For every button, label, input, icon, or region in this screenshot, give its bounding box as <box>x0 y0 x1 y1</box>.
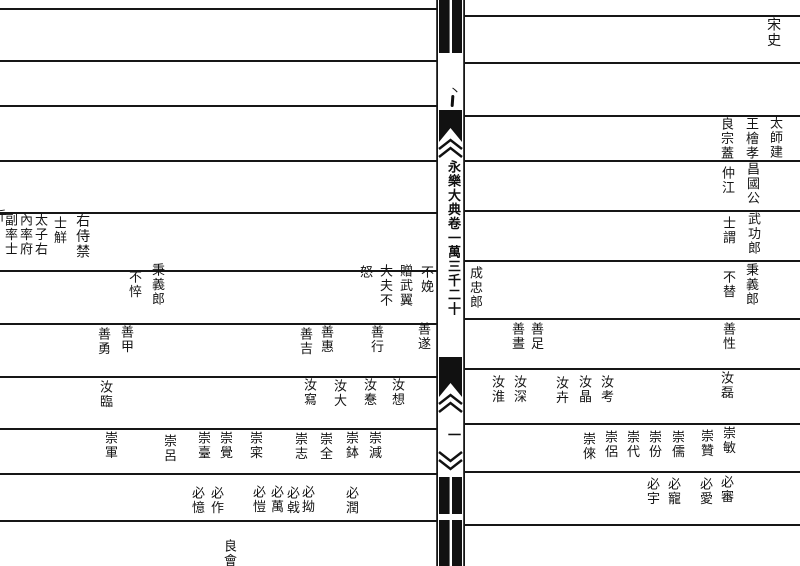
genealogy-entry: 贈武翼 <box>397 264 411 308</box>
spine-page-number: 一 <box>444 428 459 442</box>
genealogy-entry: 善晝 <box>509 322 523 351</box>
genealogy-entry: 善吉 <box>297 327 311 356</box>
rule-line <box>465 368 800 370</box>
genealogy-entry: 必萬 <box>268 485 282 514</box>
genealogy-entry: 斤 <box>0 209 5 224</box>
rule-line <box>465 471 800 473</box>
genealogy-entry: 善遂 <box>415 322 429 351</box>
genealogy-entry: 善性 <box>720 322 734 351</box>
fishtail-icon <box>439 110 462 157</box>
genealogy-entry: 王檜孝 <box>743 117 757 161</box>
genealogy-entry: 汝深 <box>511 375 525 404</box>
rule-line <box>0 428 437 430</box>
genealogy-entry: 崇敏 <box>720 426 734 455</box>
spine-top-bar <box>439 0 462 53</box>
genealogy-entry: 必憶 <box>189 486 203 515</box>
genealogy-entry: 汝晶 <box>576 375 590 404</box>
genealogy-entry: 汝磊 <box>718 371 732 400</box>
genealogy-entry: 大夫不 <box>377 264 391 308</box>
rule-line <box>0 212 437 214</box>
genealogy-entry: 崇減 <box>366 431 380 460</box>
genealogy-entry: 成忠郎 <box>467 266 481 310</box>
genealogy-entry: 怒 <box>357 265 371 280</box>
genealogy-entry: 不悴 <box>126 270 140 299</box>
fishtail-icon <box>439 357 462 412</box>
rule-line <box>0 520 437 522</box>
genealogy-entry: 善惠 <box>318 325 332 354</box>
genealogy-entry: 必㦸 <box>284 486 298 515</box>
genealogy-entry: 仲江 <box>719 166 733 195</box>
genealogy-entry: 必寵 <box>665 477 679 506</box>
genealogy-entry: 善甲 <box>118 325 132 354</box>
genealogy-entry: 崇志 <box>292 432 306 461</box>
genealogy-entry: 太師建 <box>767 116 781 160</box>
rule-line <box>465 524 800 526</box>
genealogy-entry: 汝臨 <box>97 380 111 409</box>
genealogy-entry: 必愷 <box>250 485 264 514</box>
spine-right-border <box>463 0 465 566</box>
genealogy-entry: 良宗蓋 <box>718 117 732 161</box>
rule-line <box>465 318 800 320</box>
rule-line <box>0 8 437 10</box>
rule-line <box>0 160 437 162</box>
genealogy-entry: 崇儒 <box>669 430 683 459</box>
spine-mark-stroke <box>451 95 454 107</box>
genealogy-entry: 善足 <box>528 322 542 351</box>
genealogy-entry: 善勇 <box>95 327 109 356</box>
genealogy-entry: 不娩 <box>418 265 432 294</box>
genealogy-entry: 汝惷 <box>361 378 375 407</box>
genealogy-entry: 崇臺 <box>195 431 209 460</box>
rule-line <box>465 15 800 17</box>
genealogy-entry: 必愛 <box>697 477 711 506</box>
genealogy-entry: 汝想 <box>389 378 403 407</box>
genealogy-entry: 秉義郎 <box>743 263 757 307</box>
rule-line <box>0 60 437 62</box>
genealogy-entry: 必宇 <box>644 477 658 506</box>
genealogy-entry: 善行 <box>368 325 382 354</box>
genealogy-entry: 崇贊 <box>698 429 712 458</box>
genealogy-entry: 崇倈 <box>580 432 594 461</box>
genealogy-entry: 必潤 <box>343 486 357 515</box>
genealogy-entry: 良會 <box>221 539 235 566</box>
genealogy-entry: 武功郎 <box>745 212 759 256</box>
genealogy-entry: 汝考 <box>598 375 612 404</box>
genealogy-entry: 必作 <box>208 486 222 515</box>
rule-line <box>0 473 437 475</box>
genealogy-entry: 崇侶 <box>602 430 616 459</box>
genealogy-entry: 汝寫 <box>301 378 315 407</box>
genealogy-entry: 汝淮 <box>489 375 503 404</box>
rule-line <box>465 62 800 64</box>
genealogy-entry: 士觧 <box>51 216 65 245</box>
genealogy-entry: 崇覺 <box>217 431 231 460</box>
genealogy-entry: 太子右 <box>32 213 46 257</box>
fishtail-inverted-icon <box>439 452 462 566</box>
genealogy-entry: 必拗 <box>299 485 313 514</box>
genealogy-entry: 汝卉 <box>553 376 567 405</box>
genealogy-entry: 崇份 <box>646 430 660 459</box>
genealogy-entry: 秉義郎 <box>149 263 163 307</box>
genealogy-entry: 崇代 <box>624 430 638 459</box>
rule-line <box>465 423 800 425</box>
rule-line <box>465 260 800 262</box>
genealogy-entry: 崇寀 <box>247 431 261 460</box>
genealogy-entry: 汝大 <box>331 379 345 408</box>
genealogy-entry: 宋史 <box>765 17 780 48</box>
genealogy-entry: 崇呂 <box>161 434 175 463</box>
genealogy-entry: 崇軍 <box>102 431 116 460</box>
spine-left-border <box>436 0 438 566</box>
spine-volume-title: 永樂大典卷一萬三千二十 <box>444 160 459 316</box>
rule-line <box>0 105 437 107</box>
genealogy-entry: 士謂 <box>720 216 734 245</box>
genealogy-entry: 崇鉢 <box>343 431 357 460</box>
genealogy-entry: 崇全 <box>317 432 331 461</box>
genealogy-entry: 不替 <box>720 270 734 299</box>
scanned-genealogy-page: 宋史太師建王檜孝良宗蓋昌國公仲江武功郎士謂成忠郎秉義郎不替善性善足善晝汝磊汝考汝… <box>0 0 800 566</box>
genealogy-entry: 右侍禁 <box>74 213 89 260</box>
genealogy-entry: 內率府 <box>17 213 31 257</box>
genealogy-entry: 昌國公 <box>744 162 758 206</box>
genealogy-entry: 必審 <box>718 475 732 504</box>
